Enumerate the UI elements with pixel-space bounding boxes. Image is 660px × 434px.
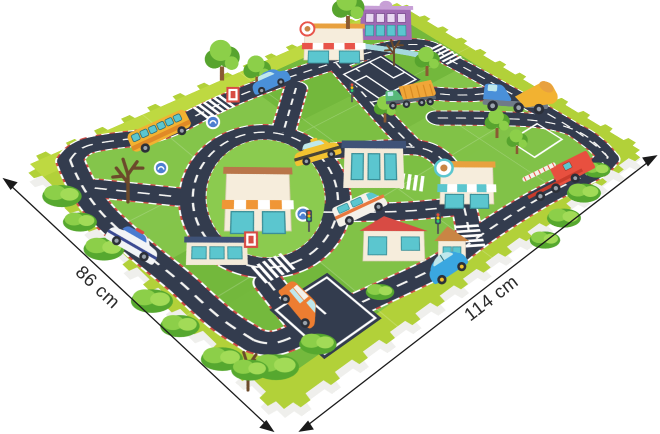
- svg-text:86 cm: 86 cm: [72, 261, 125, 313]
- svg-text:114 cm: 114 cm: [460, 270, 522, 325]
